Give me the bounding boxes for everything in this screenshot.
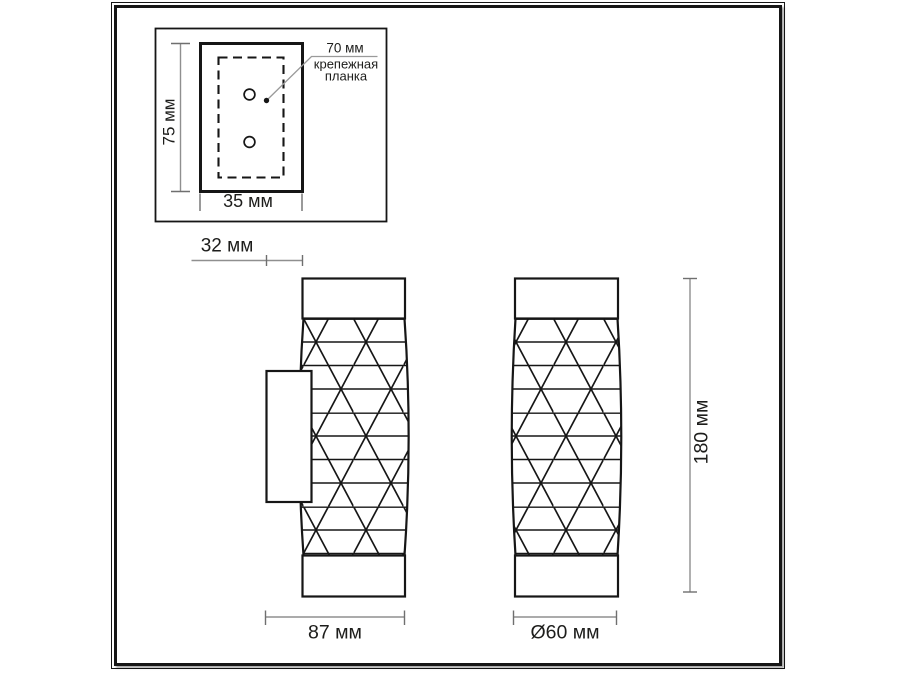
mounting-hole-bottom — [244, 137, 255, 148]
technical-drawing — [0, 0, 900, 675]
plate-outline — [201, 44, 303, 192]
side-view-diffuser — [299, 319, 408, 556]
front-view-top-cap — [515, 279, 618, 319]
side-view-top-cap — [303, 279, 406, 319]
front-view-diffuser — [512, 319, 622, 556]
leader-dot — [264, 98, 269, 103]
front-view-bottom-cap — [515, 556, 618, 597]
drawing-canvas: 70 мм крепежная планка 75 мм 35 мм 32 мм… — [0, 0, 900, 675]
label-plate-width: 35 мм — [223, 192, 273, 210]
label-body-height: 180 мм — [692, 400, 712, 465]
plate-dashed-outline — [219, 58, 284, 178]
label-plate-caption-line2: планка — [325, 70, 367, 83]
label-body-diameter: Ø60 мм — [530, 623, 599, 643]
sconce-side-view — [267, 279, 409, 597]
label-hole-spacing: 70 мм — [326, 41, 363, 55]
label-plate-height: 75 мм — [161, 98, 178, 145]
label-bracket-depth: 32 мм — [201, 237, 254, 256]
side-view-bottom-cap — [303, 556, 406, 597]
mounting-hole-top — [244, 89, 255, 100]
wall-bracket — [267, 371, 312, 502]
label-body-width: 87 мм — [308, 623, 362, 643]
sconce-front-view — [512, 279, 622, 597]
